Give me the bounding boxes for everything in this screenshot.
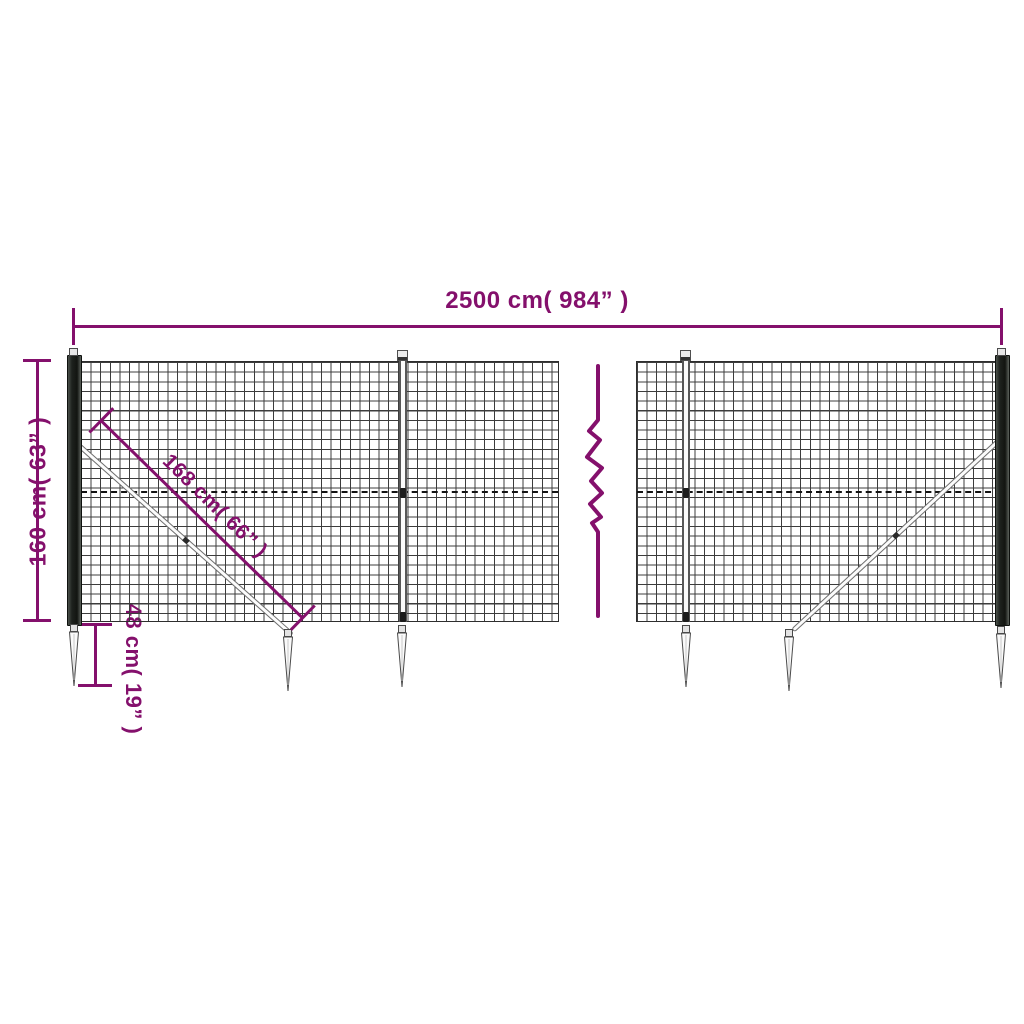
wire-clamp bbox=[400, 488, 406, 498]
height-dimension-label: 160 cm( 63” ) bbox=[25, 372, 52, 612]
end-post-left bbox=[67, 355, 82, 626]
ground-spike bbox=[781, 629, 797, 693]
end-post-right bbox=[995, 355, 1010, 626]
ground-spike bbox=[394, 625, 410, 689]
width-dimension-line bbox=[73, 325, 1002, 328]
ground-spike bbox=[678, 625, 694, 689]
wire-clamp bbox=[683, 488, 689, 498]
post-cap-left bbox=[69, 348, 78, 356]
mesh-panel-left bbox=[80, 361, 559, 622]
break-line-zigzag bbox=[580, 364, 616, 620]
intermediate-post-cap-left bbox=[397, 350, 408, 361]
wire-clamp bbox=[400, 612, 406, 622]
spike-dimension-tick-bottom bbox=[78, 684, 112, 687]
wire-clamp bbox=[683, 612, 689, 622]
ground-spike bbox=[993, 626, 1009, 690]
fence-dimension-diagram: 2500 cm( 984” ) 160 cm( 63” ) 48 cm( 19”… bbox=[0, 0, 1024, 1024]
ground-spike bbox=[66, 624, 82, 688]
height-dimension-tick-bottom bbox=[23, 619, 51, 622]
height-dimension-tick-top bbox=[23, 359, 51, 362]
width-dimension-tick-right bbox=[1000, 308, 1003, 345]
spike-dimension-line bbox=[94, 624, 97, 686]
spike-dimension-tick-top bbox=[78, 623, 112, 626]
width-dimension-tick-left bbox=[72, 308, 75, 345]
mesh-middle-wire-dashed bbox=[81, 491, 558, 493]
intermediate-post-cap-right bbox=[680, 350, 691, 361]
post-cap-right bbox=[997, 348, 1006, 356]
ground-spike bbox=[280, 629, 296, 693]
width-dimension-label: 2500 cm( 984” ) bbox=[445, 287, 629, 315]
